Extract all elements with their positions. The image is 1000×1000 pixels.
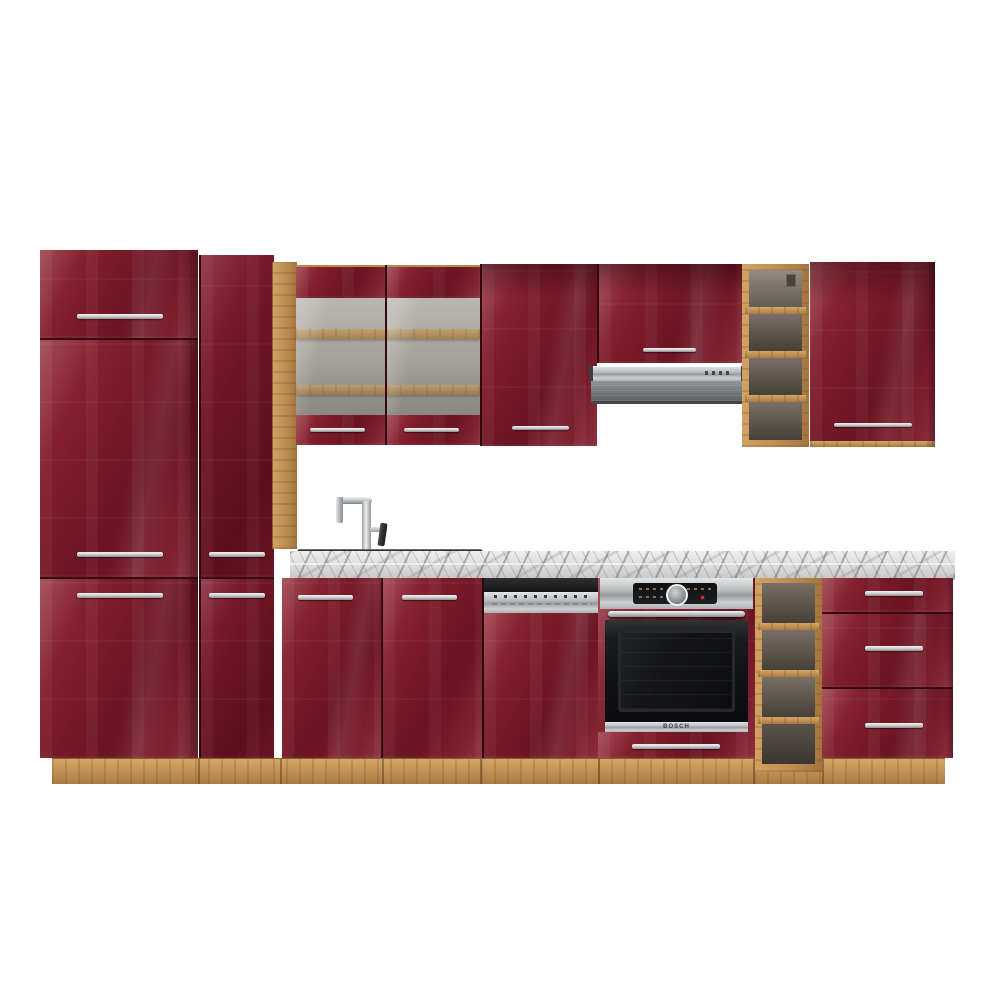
shelf-compartment	[762, 677, 815, 717]
oven-brand-strip: BOSCH	[605, 722, 748, 732]
range-hood	[589, 364, 745, 404]
oven-indicator-red	[701, 596, 704, 599]
base-shelf-unit	[755, 578, 822, 772]
oak-side-panel	[272, 262, 297, 549]
sink-door-right-handle	[402, 595, 457, 600]
wall-cabinet-right	[810, 262, 935, 447]
shelf-board	[745, 307, 806, 314]
faucet	[330, 495, 392, 551]
hood-end-cap	[589, 366, 593, 381]
wall-cabinet-solid-handle	[512, 426, 569, 430]
countertop	[290, 551, 955, 580]
faucet-spout	[336, 497, 343, 523]
drawer-3	[822, 689, 953, 758]
cabinet-top-shadow	[599, 264, 744, 294]
shelf-board	[745, 395, 806, 402]
shelf-compartment	[749, 314, 802, 351]
wall-cabinet-solid	[480, 264, 597, 446]
pantry-door-top	[201, 255, 274, 577]
dishwasher	[482, 578, 600, 758]
tall-left-door-middle-handle	[77, 552, 163, 557]
drawer-1-handle	[865, 591, 923, 596]
oven-housing: BOSCH	[598, 578, 755, 758]
plinth-seam	[382, 759, 384, 784]
dishwasher-control-panel	[484, 592, 600, 613]
tall-left-door-top-handle	[77, 314, 163, 319]
dishwasher-label-row	[492, 603, 592, 605]
wall-cabinet-right-handle	[834, 423, 912, 427]
dishwasher-top-strip	[484, 578, 600, 592]
oven-door	[605, 620, 748, 722]
shelf-board	[758, 670, 819, 677]
glass-door-left-handle	[310, 428, 365, 432]
oven-display-icons-left	[639, 588, 663, 590]
oven-knob	[666, 584, 688, 606]
pantry-door-top-handle	[209, 552, 265, 557]
shelf-board	[758, 717, 819, 724]
dishwasher-buttons	[494, 595, 590, 598]
mount-bracket	[786, 274, 796, 287]
glass-door-pane	[296, 298, 385, 415]
dishwasher-furniture-panel	[484, 613, 600, 758]
shelf-compartment	[749, 270, 802, 307]
oven-control-panel	[600, 578, 753, 609]
hood-control-buttons	[705, 371, 733, 375]
oven-base-drawer-handle	[632, 744, 720, 749]
oven-base-drawer	[598, 732, 755, 758]
shelf-compartment	[749, 358, 802, 395]
hood-visor	[589, 366, 745, 381]
glass-door-right-handle	[404, 428, 459, 432]
countertop-edge-line	[290, 563, 955, 565]
pantry-door-bottom-handle	[209, 593, 265, 598]
kitchen-product-photo: BOSCH	[0, 0, 1000, 1000]
plinth-seam	[198, 759, 200, 784]
hood-cabinet	[597, 264, 744, 363]
glass-door-top-rail	[387, 267, 480, 298]
sink-door-left	[282, 578, 381, 758]
drawer-1	[822, 578, 953, 612]
glass-door-pane	[387, 298, 480, 415]
shelf-board	[745, 351, 806, 358]
wall-shelf-unit	[742, 264, 809, 447]
tall-left-door-bottom	[40, 579, 198, 758]
plinth-seam	[280, 759, 282, 784]
faucet-riser	[362, 501, 371, 549]
glass-door-bottom-rail	[296, 415, 385, 445]
oven-display-icons-left2	[639, 596, 663, 598]
glass-door-left	[296, 267, 385, 445]
wall-cabinet-glass	[296, 265, 480, 445]
hood-body	[591, 381, 743, 404]
hood-cabinet-handle	[643, 348, 696, 352]
plinth-seam	[480, 759, 482, 784]
shelf-compartment	[762, 724, 815, 764]
sink-door-left-handle	[298, 595, 353, 600]
glass-door-top-rail	[296, 267, 385, 298]
tall-cabinet-left	[40, 250, 198, 758]
plinth-seam	[822, 759, 824, 784]
shelf-compartment	[762, 583, 815, 623]
base-cabinet-sink	[282, 578, 482, 758]
shelf-board	[758, 623, 819, 630]
pantry-door-bottom	[201, 579, 274, 758]
drawer-3-handle	[865, 723, 923, 728]
drawer-cabinet	[822, 578, 953, 758]
oven-display-icons-right	[687, 588, 711, 590]
tall-cabinet-pantry	[199, 255, 274, 758]
drawer-2-handle	[865, 646, 923, 651]
cabinet-top-shadow	[482, 264, 597, 298]
oven-handle-bar	[608, 611, 745, 617]
sink-door-right	[383, 578, 482, 758]
glass-door-right	[387, 267, 480, 445]
oven-brand-label: BOSCH	[663, 724, 690, 730]
tall-left-door-bottom-handle	[77, 593, 163, 598]
tall-left-door-top	[40, 250, 198, 338]
shelf-compartment	[749, 402, 802, 440]
cabinet-bottom-edge	[810, 441, 935, 447]
glass-door-bottom-rail	[387, 415, 480, 445]
oven-display	[633, 583, 717, 604]
tall-left-door-middle	[40, 340, 198, 577]
shelf-compartment	[762, 630, 815, 670]
plinth-seam	[598, 759, 600, 784]
cabinet-top-shadow	[810, 262, 935, 302]
oven-door-window	[618, 630, 735, 712]
drawer-2	[822, 614, 953, 687]
